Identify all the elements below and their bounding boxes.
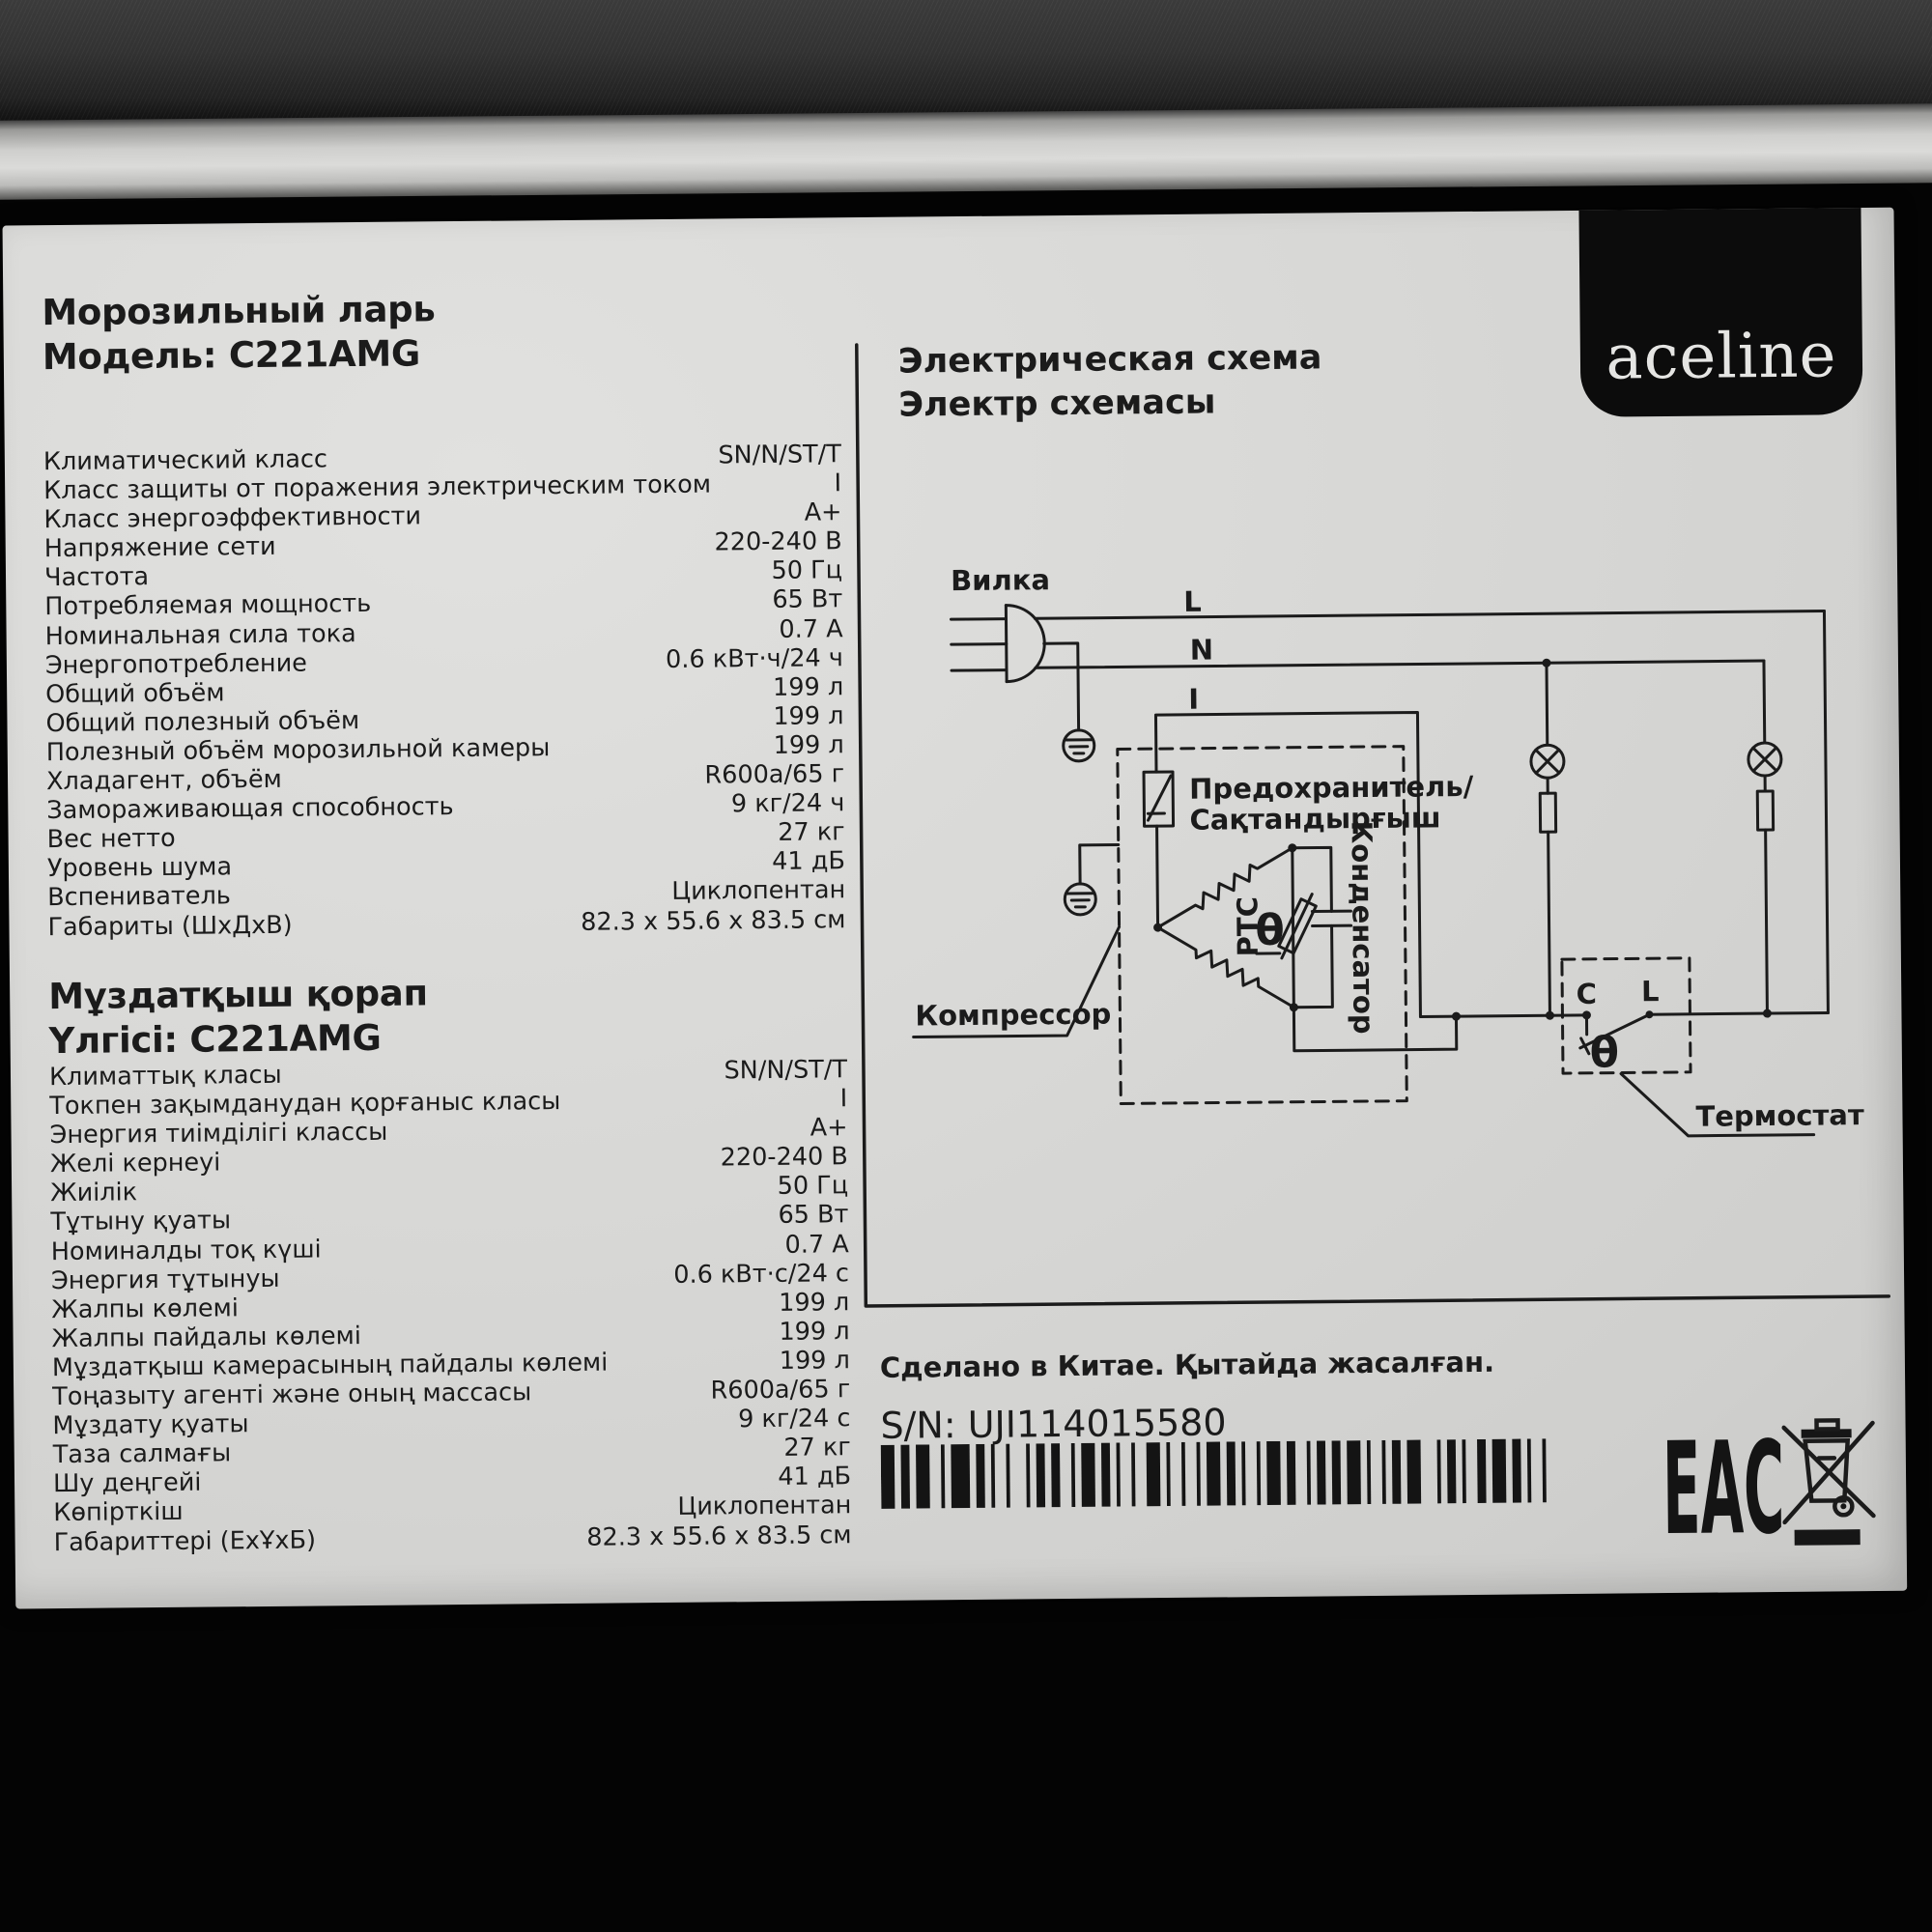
barcode (881, 1438, 1548, 1511)
spec-label: Номинальная сила тока (44, 619, 355, 651)
spec-label: Климатический класс (43, 444, 327, 476)
spec-label: Полезный объём морозильной камеры (46, 733, 551, 767)
spec-label: Жалпы көлемі (51, 1293, 239, 1324)
spec-label: Климаттық класы (49, 1061, 282, 1092)
spec-value: Циклопентан (677, 1492, 851, 1522)
spec-label: Желі кернеуі (50, 1149, 221, 1179)
eac-text: ЕАС (1662, 1424, 1784, 1555)
spec-label: Частота (44, 562, 149, 592)
weee-bar (1795, 1529, 1861, 1546)
spec-value: I (834, 469, 841, 497)
compressor-label: Компрессор (915, 998, 1111, 1033)
theta-thermostat-label: θ (1589, 1029, 1619, 1078)
spec-label: Вспениватель (47, 882, 231, 913)
ru-title-line2: Модель: C221AMG (43, 331, 436, 380)
spec-value: 0.7 А (779, 614, 842, 644)
eac-mark: ЕАС (1655, 1424, 1801, 1555)
spec-value: A+ (804, 497, 841, 526)
thermostat-label: Термостат (1695, 1098, 1864, 1133)
kz-title-line1: Мұздатқыш қорап (48, 971, 428, 1019)
spec-value: 9 кг/24 ч (731, 788, 845, 818)
theta-motor-label: θ (1255, 906, 1285, 955)
ru-title-line1: Морозильный ларь (42, 287, 435, 335)
ru-product-title: Морозильный ларь Модель: C221AMG (42, 287, 436, 380)
spec-label: Уровень шума (47, 853, 232, 884)
spec-value: 220-240 В (714, 526, 841, 556)
earth-symbol-2 (1065, 884, 1095, 915)
capacitor-label: Конденсатор (1346, 820, 1380, 1034)
circuit-diagram: Вилка L N I Предохранитель/ Сақтандырғыш… (846, 327, 1907, 1314)
spec-label: Общий объём (45, 678, 225, 709)
capacitor-symbol (1293, 847, 1352, 1008)
spec-value: 41 дБ (778, 1462, 851, 1492)
spec-value: 199 л (773, 672, 843, 702)
terminal-l-label: L (1641, 975, 1660, 1008)
spec-value: 0.6 кВт·с/24 с (673, 1259, 849, 1290)
spec-label: Жалпы пайдалы көлемі (51, 1321, 361, 1353)
spec-value: I (840, 1084, 848, 1113)
spec-label: Общий полезный объём (45, 706, 359, 738)
spec-value: 220-240 В (721, 1142, 848, 1172)
spec-value: R600a/65 г (710, 1375, 850, 1405)
ru-spec-table: Климатический классSN/N/ST/TКласс защиты… (43, 440, 846, 941)
spec-value: R600a/65 г (704, 759, 844, 789)
spec-value: 50 Гц (771, 556, 842, 586)
line-wire (1035, 611, 1824, 618)
i-label: I (1188, 683, 1199, 716)
spec-value: 9 кг/24 с (738, 1404, 851, 1434)
fuse-label-ru: Предохранитель/ (1189, 770, 1474, 806)
spec-label: Вес нетто (46, 824, 175, 854)
spec-label: Жиілік (50, 1179, 137, 1208)
spec-label: Таза салмағы (53, 1439, 232, 1470)
freezer-trim-bar (0, 103, 1932, 200)
spec-value: SN/N/ST/T (718, 440, 841, 469)
plug-label: Вилка (951, 563, 1050, 597)
spec-label: Напряжение сети (44, 532, 276, 563)
spec-label: Тоңазыту агенті және оның массасы (52, 1378, 531, 1411)
spec-value: SN/N/ST/T (724, 1055, 847, 1085)
spec-value: 0.6 кВт·ч/24 ч (666, 643, 843, 674)
spec-value: 27 кг (783, 1433, 851, 1463)
kz-title-line2: Үлгісі: C221AMG (48, 1015, 428, 1064)
spec-label: Хладагент, объём (46, 765, 282, 796)
made-in-text: Сделано в Китае. Қытайда жасалған. (880, 1346, 1494, 1384)
earth-symbol (1064, 730, 1094, 761)
photo-scene: Морозильный ларь Модель: C221AMG Климати… (0, 0, 1932, 1932)
terminal-c-label: C (1576, 978, 1597, 1010)
spec-value: 65 Вт (778, 1201, 848, 1231)
spec-value: 50 Гц (778, 1172, 849, 1202)
spec-label: Шу деңгейі (53, 1468, 202, 1499)
spec-label: Габариты (ШхДхВ) (47, 910, 292, 942)
weee-bin-icon (1781, 1413, 1877, 1551)
spec-label: Энергия тиімділігі классы (49, 1118, 387, 1150)
spec-value: 27 кг (778, 817, 845, 847)
spec-value: Циклопентан (671, 876, 845, 907)
spec-label: Энергопотребление (45, 648, 307, 680)
neutral-wire (1036, 661, 1764, 668)
spec-label: Номиналды тоқ күші (51, 1235, 322, 1266)
spec-label: Габариттері (ЕхҰхБ) (53, 1525, 316, 1557)
spec-label: Потребляемая мощность (44, 589, 371, 621)
spec-label: Класс энергоэффективности (43, 502, 421, 535)
line-label: L (1183, 585, 1202, 618)
fuse-symbol (1144, 772, 1174, 826)
kz-product-title: Мұздатқыш қорап Үлгісі: C221AMG (48, 971, 428, 1064)
spec-value: 199 л (774, 730, 844, 760)
spec-value: A+ (810, 1113, 848, 1142)
serial-number: S/N: UJI114015580 (880, 1401, 1226, 1446)
spec-label: Энергия тұтынуы (51, 1264, 280, 1294)
spec-value: 82.3 x 55.6 x 83.5 см (586, 1520, 852, 1552)
spec-value: 0.7 А (784, 1230, 848, 1260)
lamp-symbol-2 (1747, 661, 1784, 1013)
spec-label: Мұздату қуаты (52, 1409, 248, 1440)
fuse-label-kz: Сақтандырғыш (1189, 801, 1440, 836)
spec-label: Көпірткіш (53, 1497, 184, 1527)
plug-symbol (1006, 605, 1044, 681)
spec-value: 199 л (779, 1288, 849, 1318)
spec-label: Тұтыну қуаты (50, 1207, 231, 1237)
spec-label: Замораживающая способность (46, 792, 453, 825)
kz-spec-table: Климаттық класыSN/N/ST/TТокпен зақымдану… (49, 1055, 852, 1556)
product-label: Морозильный ларь Модель: C221AMG Климати… (3, 208, 1908, 1609)
spec-value: 41 дБ (772, 847, 845, 877)
spec-value: 199 л (780, 1346, 850, 1376)
spec-value: 82.3 x 55.6 x 83.5 см (581, 905, 846, 937)
spec-value: 65 Вт (772, 585, 842, 615)
spec-value: 199 л (773, 701, 843, 731)
neutral-label: N (1190, 634, 1214, 667)
spec-value: 199 л (779, 1317, 849, 1347)
